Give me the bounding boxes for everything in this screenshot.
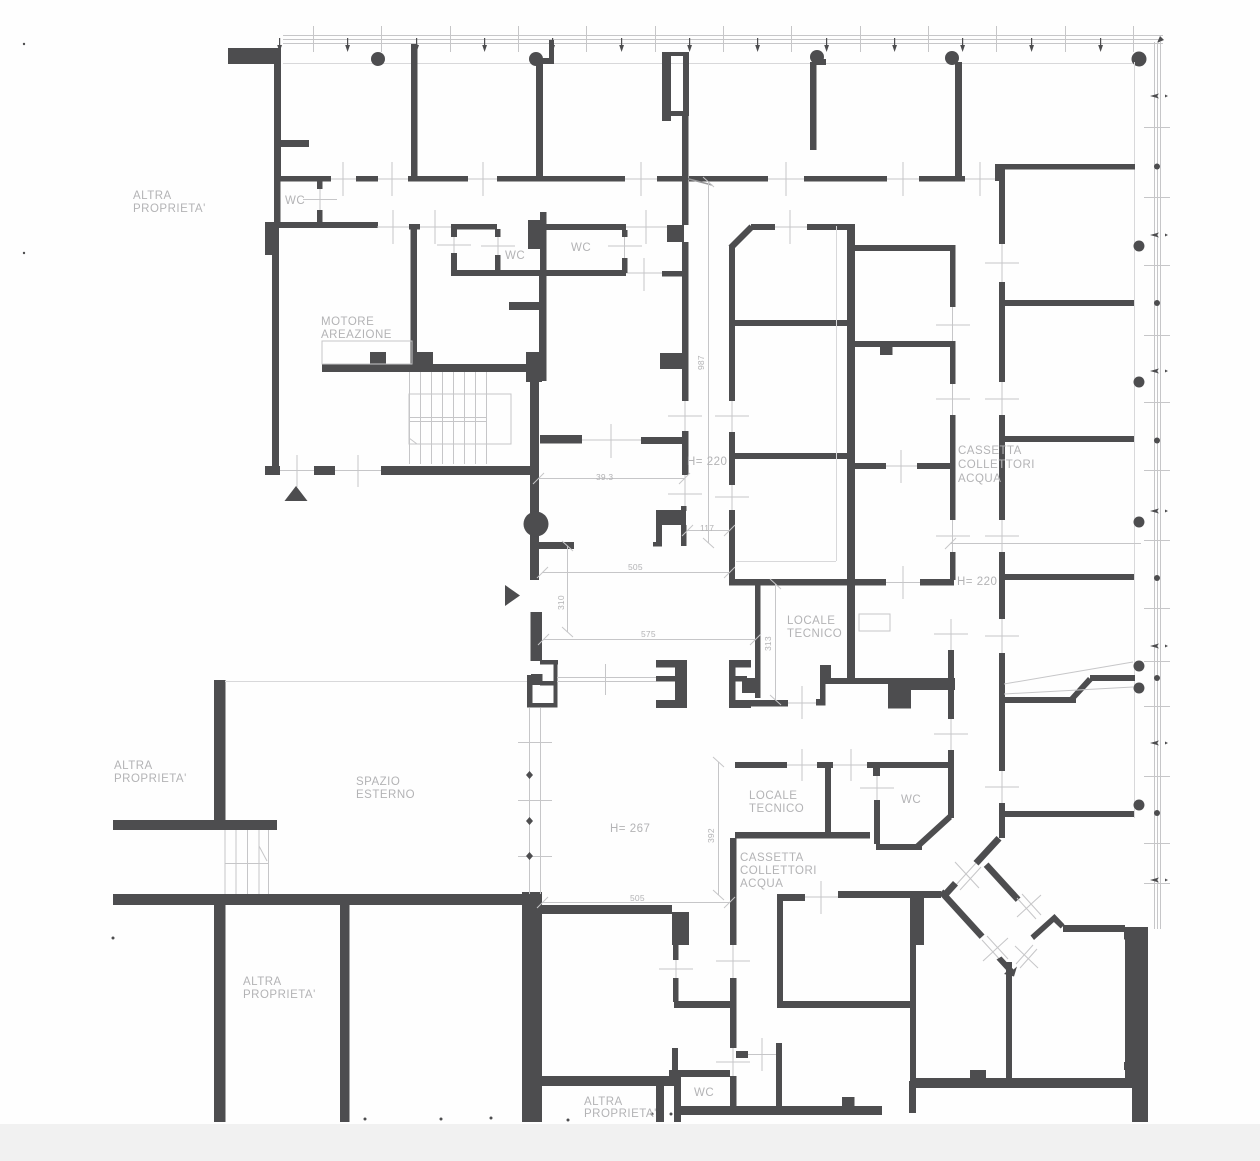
svg-text:LOCALE: LOCALE: [787, 615, 835, 627]
svg-text:ALTRA: ALTRA: [584, 1096, 623, 1108]
svg-text:CASSETTA: CASSETTA: [958, 445, 1022, 457]
svg-text:ALTRA: ALTRA: [243, 976, 282, 988]
svg-text:H= 220: H= 220: [957, 576, 997, 588]
svg-text:PROPRIETA': PROPRIETA': [584, 1108, 657, 1120]
svg-text:COLLETTORI: COLLETTORI: [958, 459, 1035, 471]
svg-text:WC: WC: [901, 794, 921, 806]
svg-text:39.3: 39.3: [596, 472, 613, 482]
svg-text:505: 505: [630, 893, 645, 903]
svg-text:392: 392: [706, 828, 716, 843]
svg-text:TECNICO: TECNICO: [787, 628, 842, 640]
svg-text:H= 267: H= 267: [610, 823, 650, 835]
svg-text:PROPRIETA': PROPRIETA': [133, 203, 206, 215]
svg-text:313: 313: [763, 636, 773, 651]
svg-text:ALTRA: ALTRA: [133, 190, 172, 202]
svg-text:WC: WC: [285, 195, 305, 207]
svg-text:ESTERNO: ESTERNO: [356, 789, 415, 801]
svg-text:H= 220: H= 220: [687, 456, 727, 468]
svg-text:LOCALE: LOCALE: [749, 790, 797, 802]
svg-text:CASSETTA: CASSETTA: [740, 852, 804, 864]
svg-text:TECNICO: TECNICO: [749, 803, 804, 815]
svg-text:987: 987: [696, 355, 706, 370]
svg-text:ACQUA: ACQUA: [958, 473, 1001, 485]
svg-text:WC: WC: [694, 1087, 714, 1099]
svg-text:SPAZIO: SPAZIO: [356, 776, 400, 788]
svg-text:WC: WC: [505, 250, 525, 262]
svg-text:COLLETTORI: COLLETTORI: [740, 865, 817, 877]
svg-text:ALTRA: ALTRA: [114, 760, 153, 772]
svg-text:AREAZIONE: AREAZIONE: [321, 329, 392, 341]
svg-text:310: 310: [556, 595, 566, 610]
svg-text:117: 117: [700, 523, 714, 533]
svg-text:PROPRIETA': PROPRIETA': [243, 989, 316, 1001]
svg-text:WC: WC: [571, 242, 591, 254]
svg-text:505: 505: [628, 562, 643, 572]
svg-text:ACQUA: ACQUA: [740, 878, 783, 890]
svg-text:MOTORE: MOTORE: [321, 316, 374, 328]
svg-text:575: 575: [641, 629, 656, 639]
svg-text:PROPRIETA': PROPRIETA': [114, 773, 187, 785]
